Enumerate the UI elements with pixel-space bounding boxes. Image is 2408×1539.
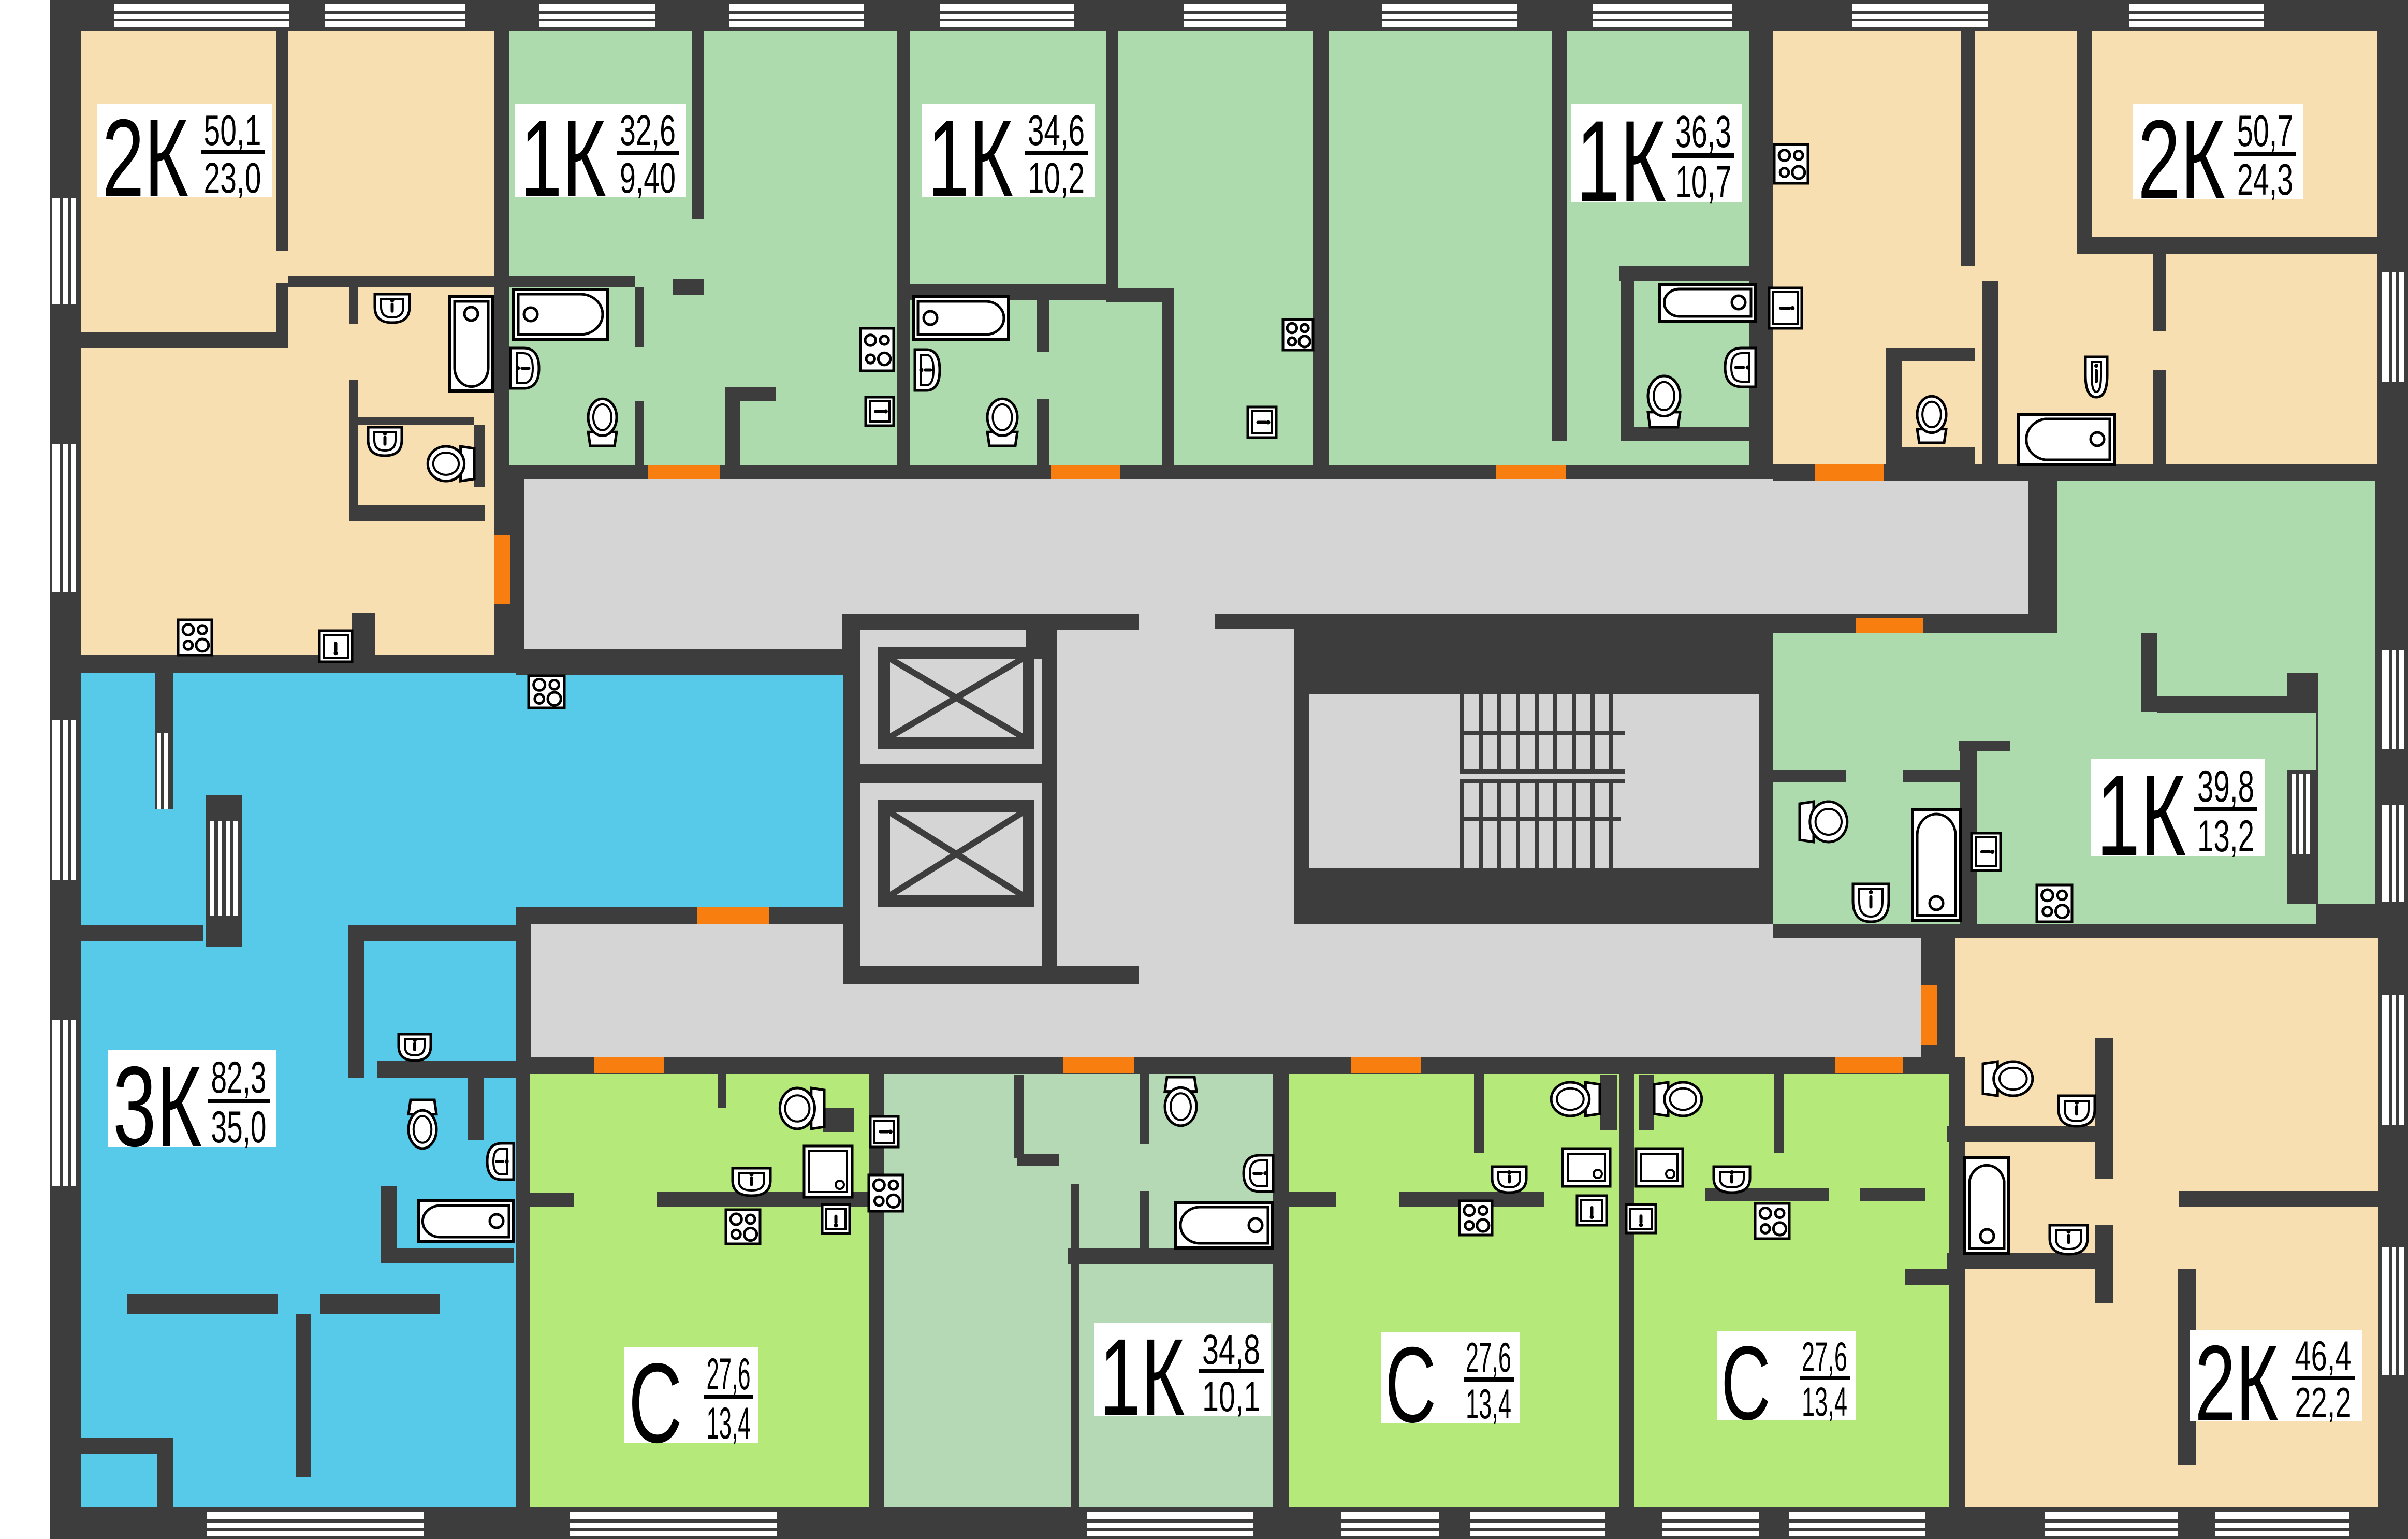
svg-text:1К: 1К xyxy=(520,97,606,220)
svg-text:С: С xyxy=(1385,1325,1436,1445)
svg-text:2К: 2К xyxy=(2195,1324,2279,1444)
svg-text:1К: 1К xyxy=(1576,97,1666,226)
svg-text:С: С xyxy=(1721,1325,1771,1442)
svg-text:10,1: 10,1 xyxy=(1202,1373,1260,1420)
svg-text:39,8: 39,8 xyxy=(2197,762,2254,811)
svg-text:1К: 1К xyxy=(927,97,1013,220)
svg-text:3К: 3К xyxy=(113,1042,202,1170)
svg-text:34,8: 34,8 xyxy=(1202,1326,1260,1373)
svg-text:10,7: 10,7 xyxy=(1675,157,1731,207)
svg-text:2К: 2К xyxy=(2138,97,2225,222)
svg-text:50,7: 50,7 xyxy=(2237,107,2293,156)
svg-text:13,2: 13,2 xyxy=(2197,811,2254,861)
svg-text:10,2: 10,2 xyxy=(1028,154,1085,202)
svg-text:82,3: 82,3 xyxy=(211,1053,267,1102)
svg-text:35,0: 35,0 xyxy=(211,1102,267,1152)
svg-text:13,4: 13,4 xyxy=(707,1399,751,1448)
svg-text:27,6: 27,6 xyxy=(1466,1334,1511,1381)
svg-text:1К: 1К xyxy=(1099,1316,1185,1438)
svg-text:46,4: 46,4 xyxy=(2295,1333,2352,1380)
svg-text:С: С xyxy=(629,1340,682,1467)
svg-text:34,6: 34,6 xyxy=(1028,106,1085,154)
svg-text:13,4: 13,4 xyxy=(1802,1378,1847,1425)
svg-text:9,40: 9,40 xyxy=(620,154,676,202)
svg-text:36,3: 36,3 xyxy=(1675,107,1731,157)
svg-text:50,1: 50,1 xyxy=(204,106,261,154)
svg-text:22,2: 22,2 xyxy=(2295,1380,2352,1426)
svg-text:2К: 2К xyxy=(102,96,188,220)
svg-text:27,6: 27,6 xyxy=(1802,1333,1847,1380)
svg-text:24,3: 24,3 xyxy=(2237,155,2293,205)
svg-text:27,6: 27,6 xyxy=(707,1349,751,1399)
svg-text:23,0: 23,0 xyxy=(204,154,261,202)
svg-text:1К: 1К xyxy=(2096,751,2186,880)
svg-text:13,4: 13,4 xyxy=(1466,1381,1511,1428)
svg-text:32,6: 32,6 xyxy=(620,106,676,154)
